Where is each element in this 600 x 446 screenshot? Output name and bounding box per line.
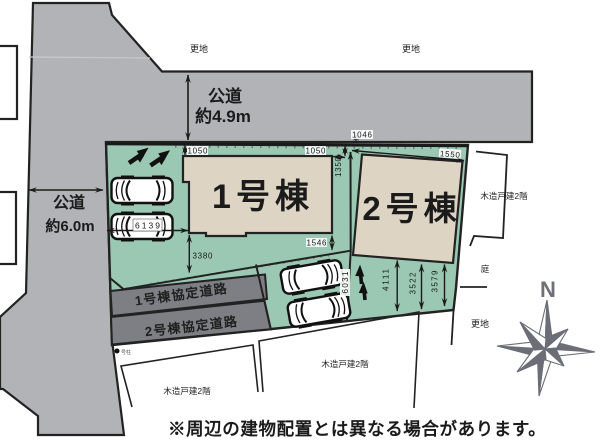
svg-text:庭: 庭 <box>481 264 490 274</box>
svg-text:1546: 1546 <box>307 239 328 248</box>
svg-text:1号棟: 1号棟 <box>212 178 314 216</box>
svg-text:木造戸建2階: 木造戸建2階 <box>321 359 369 369</box>
svg-text:N: N <box>540 277 556 302</box>
svg-text:公道: 公道 <box>53 193 85 212</box>
svg-text:3522: 3522 <box>409 272 418 295</box>
svg-text:号柱: 号柱 <box>121 349 131 356</box>
svg-text:※周辺の建物配置とは異なる場合があります。: ※周辺の建物配置とは異なる場合があります。 <box>168 419 546 439</box>
svg-text:約4.9m: 約4.9m <box>195 106 251 126</box>
svg-text:更地: 更地 <box>471 318 489 329</box>
svg-text:4111: 4111 <box>382 268 391 291</box>
svg-text:1350: 1350 <box>334 156 343 177</box>
svg-text:1550: 1550 <box>440 149 461 159</box>
svg-text:3380: 3380 <box>193 252 214 261</box>
svg-text:更地: 更地 <box>190 43 208 54</box>
svg-text:6031: 6031 <box>341 271 350 294</box>
svg-text:3579: 3579 <box>431 270 440 293</box>
svg-text:約6.0m: 約6.0m <box>45 217 94 235</box>
svg-text:木造戸建2階: 木造戸建2階 <box>163 386 211 396</box>
svg-text:1050: 1050 <box>188 147 209 156</box>
svg-text:木造戸建2階: 木造戸建2階 <box>480 191 528 201</box>
svg-text:1046: 1046 <box>352 131 373 140</box>
svg-text:6139: 6139 <box>135 221 160 231</box>
svg-text:2号棟: 2号棟 <box>362 190 461 227</box>
svg-text:公道: 公道 <box>208 86 242 106</box>
svg-text:1050: 1050 <box>306 147 327 156</box>
svg-text:更地: 更地 <box>402 43 420 54</box>
